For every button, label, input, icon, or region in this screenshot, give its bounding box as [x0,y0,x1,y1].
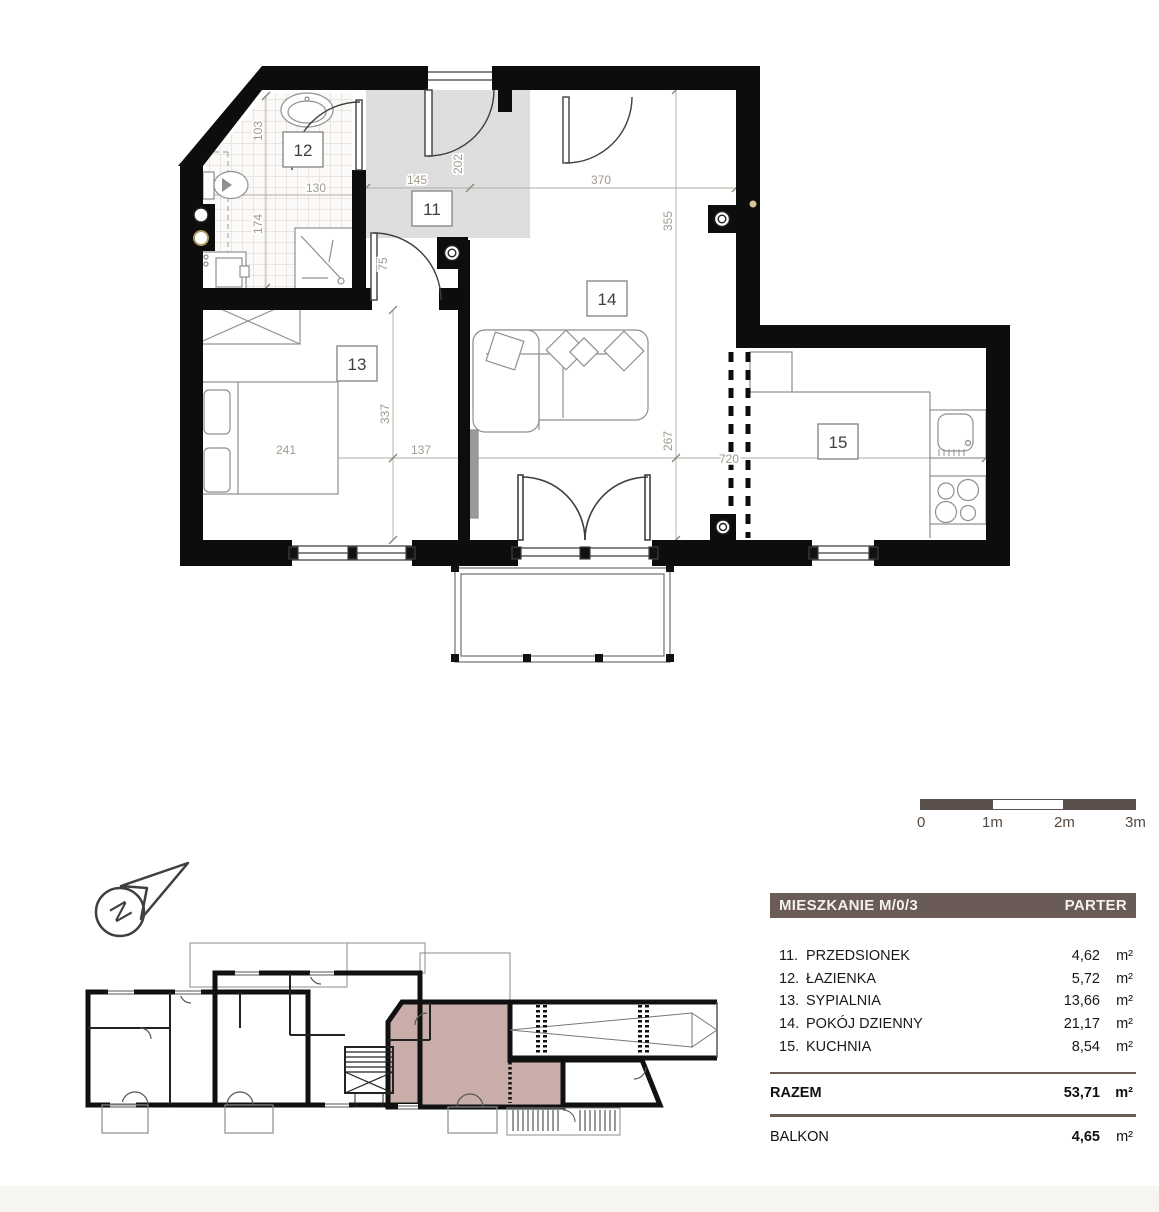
legend-room-row: 12.ŁAZIENKA5,72m² [770,968,1136,991]
apartment-title: MIESZKANIE M/0/3 [779,897,918,914]
room-area: 4,62 [1030,948,1100,964]
legend-header: MIESZKANIE M/0/3 PARTER [770,893,1136,918]
balcony [451,564,674,662]
bathroom-sink [281,93,333,127]
scale-tick-2m: 2m [1054,814,1075,831]
dim-145: 145 [407,173,427,187]
corner-sofa [473,330,648,432]
dim-202: 202 [451,154,465,174]
room-label-15: 15 [818,424,858,459]
scale-tick-3m: 3m [1125,814,1146,831]
dim-75: 75 [376,257,390,271]
room-label-12: 12 [283,132,323,167]
dim-355: 355 [661,211,675,231]
mini-entry-stairs [507,1108,620,1135]
legend-room-row: 14.POKÓJ DZIENNY21,17m² [770,1013,1136,1036]
legend-room-list: 11.PRZEDSIONEK4,62m²12.ŁAZIENKA5,72m²13.… [770,945,1136,1058]
room-number: 15. [770,1039,806,1055]
room-number: 11. [770,948,806,964]
area-unit: m² [1100,948,1136,964]
legend-total-row: RAZEM 53,71 m² [770,1085,1136,1101]
area-unit: m² [1100,1016,1136,1032]
dim-130: 130 [306,181,326,195]
balcony-french-doors [518,475,650,540]
floor-label: PARTER [1065,897,1127,914]
room-name: POKÓJ DZIENNY [806,1016,1030,1032]
open-boundary-dashed [731,352,748,538]
entrance-opening [428,72,492,80]
balcony-area: 4,65 [1030,1129,1100,1145]
dim-137: 137 [411,443,431,457]
room-name: PRZEDSIONEK [806,948,1030,964]
room-area: 21,17 [1030,1016,1100,1032]
hall-living-door [563,97,632,163]
total-label: RAZEM [770,1085,1030,1101]
scale-bar: 0 1m 2m 3m [920,799,1136,833]
room-name: KUCHNIA [806,1039,1030,1055]
toilet [203,172,248,200]
legend-room-row: 11.PRZEDSIONEK4,62m² [770,945,1136,968]
divider [770,1072,1136,1075]
scale-segment-light [992,799,1064,810]
highlighted-apartment [388,1002,563,1107]
shower [295,228,360,293]
dim-241: 241 [276,443,296,457]
page-bottom-strip [0,1186,1159,1212]
driveway-ramp [510,1002,717,1058]
legend-room-row: 13.SYPIALNIA13,66m² [770,990,1136,1013]
room-name: SYPIALNIA [806,993,1030,1009]
balcony-door-sill [512,547,658,559]
room-number: 14. [770,1016,806,1032]
bedroom-window [289,546,415,560]
washing-machine [200,252,249,291]
total-unit: m² [1100,1085,1136,1101]
balcony-unit: m² [1100,1129,1136,1145]
room-area: 8,54 [1030,1039,1100,1055]
floor-plan: 145 370 130 241 137 720 202 355 267 337 … [0,0,1159,770]
dim-174: 174 [251,214,265,234]
legend-balcony-row: BALKON 4,65 m² [770,1129,1136,1145]
scale-tick-1m: 1m [982,814,1003,831]
balcony-label: BALKON [770,1129,1030,1145]
svg-text:12: 12 [294,141,313,160]
divider [770,1114,1136,1117]
room-label-11: 11 [412,191,452,226]
tv [470,430,478,518]
room-area: 13,66 [1030,993,1100,1009]
scale-segment-dark [920,799,992,810]
building-overview-plan [80,935,740,1150]
fridge-cabinet [750,352,792,392]
svg-text:13: 13 [348,355,367,374]
total-area: 53,71 [1030,1085,1100,1101]
dim-103: 103 [251,121,265,141]
dim-370: 370 [591,173,611,187]
room-area: 5,72 [1030,971,1100,987]
area-unit: m² [1100,971,1136,987]
svg-text:15: 15 [829,433,848,452]
stove [930,476,986,524]
scale-tick-0: 0 [917,814,925,831]
room-number: 13. [770,993,806,1009]
svg-text:14: 14 [598,290,617,309]
north-label: N [103,896,138,927]
double-bed [198,382,338,494]
room-number: 12. [770,971,806,987]
legend-room-row: 15.KUCHNIA8,54m² [770,1035,1136,1058]
area-unit: m² [1100,993,1136,1009]
area-unit: m² [1100,1039,1136,1055]
adjacent-unit [563,1060,660,1105]
kitchen-sink [930,410,986,458]
dim-337: 337 [378,404,392,424]
room-name: ŁAZIENKA [806,971,1030,987]
kitchen-counter [792,392,930,538]
kitchen-window [809,546,878,560]
svg-text:11: 11 [423,200,441,219]
scale-segment-dark [1064,799,1136,810]
dim-267: 267 [661,431,675,451]
apartment-legend: MIESZKANIE M/0/3 PARTER 11.PRZEDSIONEK4,… [770,893,1136,1145]
room-label-13: 13 [337,346,377,381]
room-label-14: 14 [587,281,627,316]
dim-720: 720 [719,452,739,466]
